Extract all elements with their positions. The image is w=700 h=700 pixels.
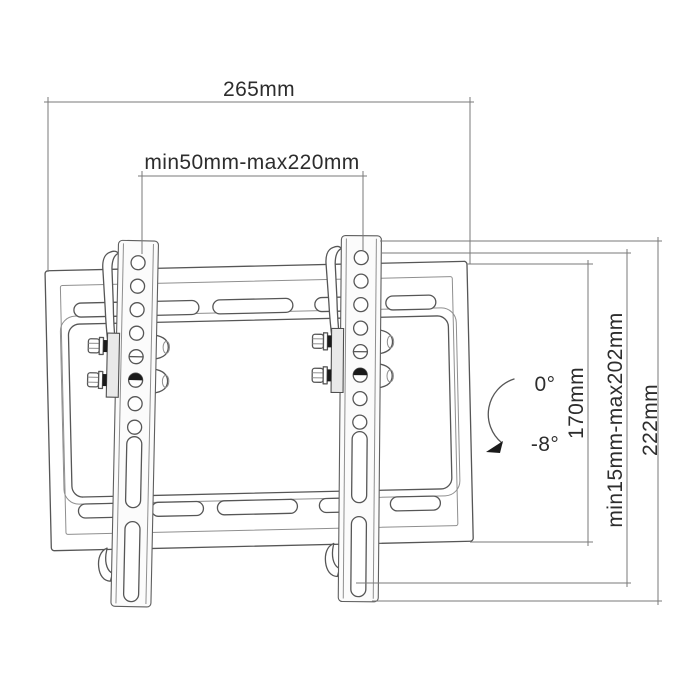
tilt-down-label: -8° — [531, 433, 559, 456]
tv-wall-mount-technical-drawing: 265mm min50mm-max220mm 0° -8° 170mm min1… — [0, 0, 700, 700]
drawing-svg: 265mm min50mm-max220mm 0° -8° 170mm min1… — [0, 0, 700, 700]
right-tv-arm — [310, 235, 394, 602]
bracket-assembly — [44, 231, 474, 610]
height-range-label: min15mm-max202mm — [604, 312, 627, 527]
overall-width-label: 265mm — [223, 78, 295, 101]
bracket-spacing-label: min50mm-max220mm — [144, 151, 359, 174]
overall-height-label: 222mm — [639, 384, 662, 456]
plate-height-label: 170mm — [565, 367, 588, 439]
tilt-indicator: 0° -8° — [486, 373, 559, 456]
left-tv-arm — [83, 240, 172, 608]
tilt-arc — [488, 379, 514, 443]
dim-bracket-spacing: min50mm-max220mm — [138, 151, 367, 254]
dim-overall-width: 265mm — [44, 78, 474, 272]
tilt-arrowhead — [486, 441, 503, 453]
dim-plate-height: 170mm — [467, 260, 593, 546]
tilt-up-label: 0° — [535, 373, 556, 396]
